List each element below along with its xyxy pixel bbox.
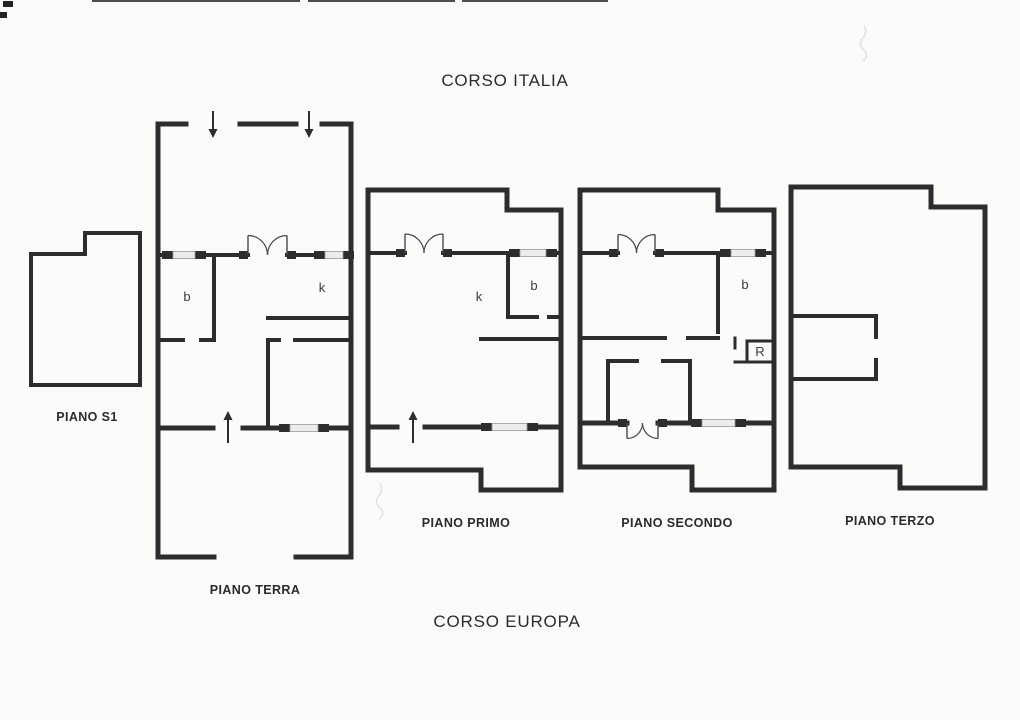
room-label-b: b: [530, 278, 537, 293]
window-symbol: [290, 425, 318, 432]
floor-name-label: PIANO SECONDO: [621, 516, 732, 530]
window-symbol: [520, 250, 546, 257]
stair-direction-arrowhead: [305, 129, 314, 138]
floor-name-label: PIANO TERZO: [845, 514, 935, 528]
door-swing-arc: [248, 236, 268, 256]
door-swing-arc: [405, 234, 424, 253]
floor-name-label: PIANO PRIMO: [422, 516, 510, 530]
stair-direction-arrowhead: [224, 411, 233, 420]
window-symbol: [173, 252, 195, 259]
floorplan-piano-terzo: PIANO TERZO: [791, 187, 985, 528]
window-symbol: [702, 420, 735, 427]
floorplan-piano-s1: PIANO S1: [31, 233, 140, 424]
door-swing-arc: [424, 234, 443, 253]
scan-smudge: [861, 25, 867, 61]
stair-direction-arrowhead: [209, 129, 218, 138]
scan-corner-mark: [0, 12, 7, 18]
scan-artifacts: [0, 1, 867, 519]
scanned-floorplan-page: { "titles": { "top": "CORSO ITALIA", "bo…: [0, 0, 1020, 720]
floorplan-piano-secondo: bRPIANO SECONDO: [580, 190, 774, 530]
room-label-k: k: [476, 289, 483, 304]
floorplan-drawing: PIANO S1bkPIANO TERRAkbPIANO PRIMObRPIAN…: [0, 0, 1020, 720]
door-swing-arc: [268, 236, 288, 256]
floor-name-label: PIANO S1: [56, 410, 118, 424]
window-symbol: [325, 252, 343, 259]
room-label-b: b: [183, 289, 190, 304]
room-label-b: b: [741, 277, 748, 292]
floorplan-piano-terra: bkPIANO TERRA: [158, 111, 354, 597]
floorplan-piano-primo: kbPIANO PRIMO: [368, 190, 561, 530]
room-label-k: k: [319, 280, 326, 295]
scan-corner-mark: [3, 1, 13, 7]
window-symbol: [492, 424, 527, 431]
stair-direction-arrowhead: [409, 411, 418, 420]
scan-smudge: [377, 483, 383, 519]
door-swing-arc: [618, 235, 637, 254]
floor-name-label: PIANO TERRA: [210, 583, 301, 597]
room-label-R: R: [755, 344, 764, 359]
window-symbol: [731, 250, 755, 257]
door-swing-arc: [637, 235, 656, 254]
